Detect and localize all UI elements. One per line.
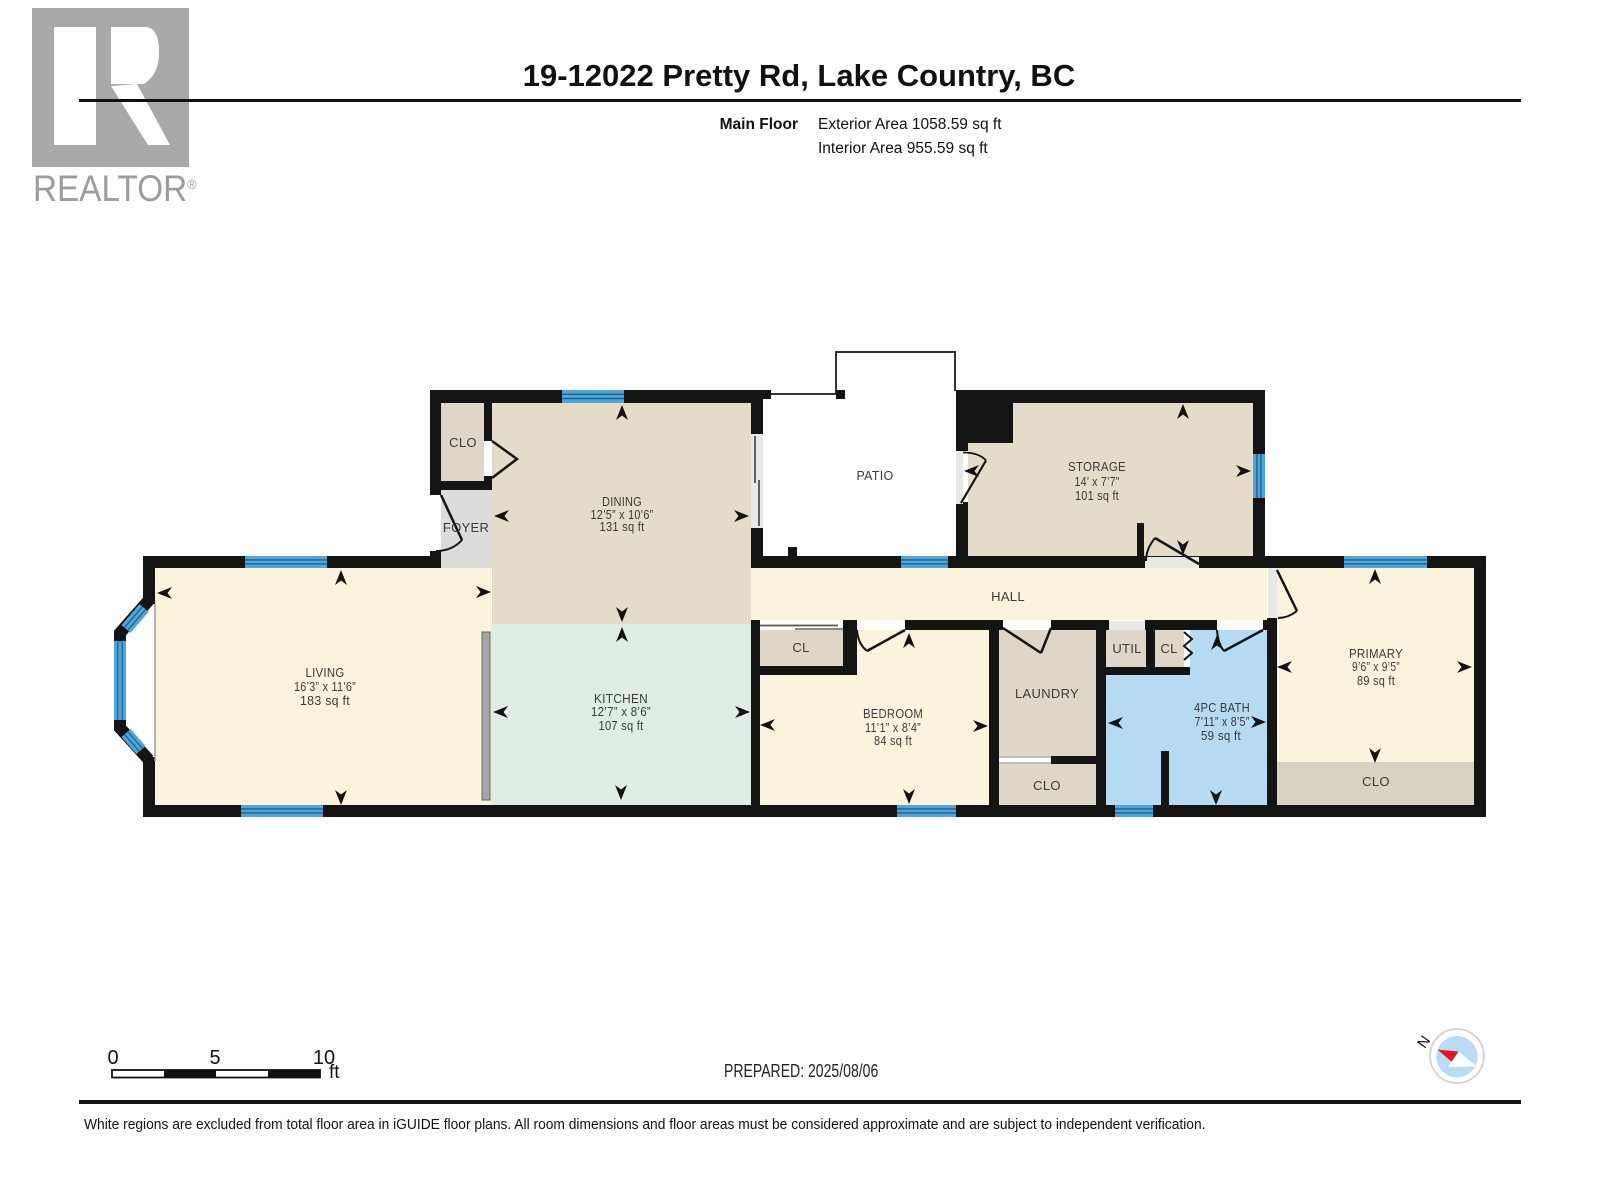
svg-text:7’11” x 8’5”: 7’11” x 8’5”	[1195, 714, 1250, 729]
svg-text:101 sq ft: 101 sq ft	[1075, 488, 1119, 503]
svg-text:HALL: HALL	[991, 589, 1025, 604]
svg-text:PATIO: PATIO	[857, 468, 894, 483]
svg-text:12’7” x 8’6”: 12’7” x 8’6”	[591, 704, 651, 719]
svg-text:LIVING: LIVING	[306, 665, 345, 680]
svg-text:89 sq ft: 89 sq ft	[1357, 673, 1395, 688]
svg-text:4PC BATH: 4PC BATH	[1194, 700, 1250, 715]
svg-text:84 sq ft: 84 sq ft	[874, 733, 912, 748]
svg-text:131 sq ft: 131 sq ft	[600, 519, 645, 534]
svg-text:59 sq ft: 59 sq ft	[1201, 728, 1241, 743]
svg-text:CLO: CLO	[449, 435, 477, 450]
svg-text:183 sq ft: 183 sq ft	[300, 693, 350, 708]
svg-text:CLO: CLO	[1033, 778, 1061, 793]
svg-text:LAUNDRY: LAUNDRY	[1015, 686, 1079, 701]
svg-text:FOYER: FOYER	[443, 520, 489, 535]
svg-text:UTIL: UTIL	[1112, 641, 1141, 656]
svg-text:14’ x 7’7”: 14’ x 7’7”	[1075, 474, 1120, 489]
svg-text:STORAGE: STORAGE	[1068, 459, 1126, 474]
svg-text:CLO: CLO	[1362, 774, 1390, 789]
svg-text:107 sq ft: 107 sq ft	[599, 718, 644, 733]
svg-text:CL: CL	[1160, 641, 1177, 656]
svg-text:BEDROOM: BEDROOM	[863, 706, 923, 721]
svg-text:CL: CL	[792, 640, 809, 655]
svg-text:16’3” x 11’6”: 16’3” x 11’6”	[294, 679, 356, 694]
svg-text:9’6” x 9’5”: 9’6” x 9’5”	[1352, 659, 1400, 674]
